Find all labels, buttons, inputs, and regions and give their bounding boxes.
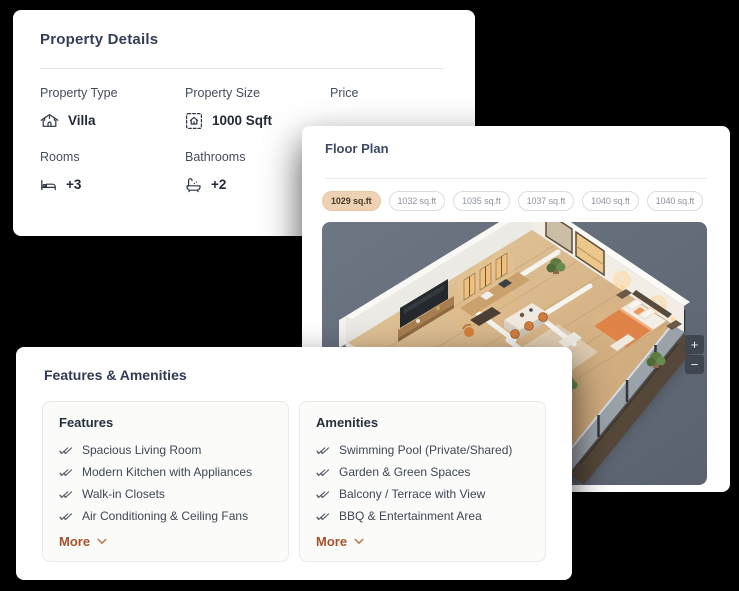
size-tab-1040a[interactable]: 1040 sq.ft [582, 191, 639, 211]
divider [325, 178, 707, 179]
size-tab-1037[interactable]: 1037 sq.ft [518, 191, 575, 211]
rooms-label: Rooms [40, 150, 185, 164]
double-check-icon [316, 445, 330, 456]
double-check-icon [59, 489, 73, 500]
floorplan-size-tabs: 1029 sq.ft 1032 sq.ft 1035 sq.ft 1037 sq… [322, 191, 707, 211]
rooms-value: +3 [40, 174, 185, 194]
size-tab-1032[interactable]: 1032 sq.ft [389, 191, 446, 211]
property-details-title: Property Details [40, 31, 448, 48]
list-item: Walk-in Closets [59, 487, 272, 502]
features-amenities-title: Features & Amenities [44, 367, 572, 383]
size-tab-1040b[interactable]: 1040 sq.ft [647, 191, 704, 211]
list-item: BBQ & Entertainment Area [316, 509, 529, 524]
double-check-icon [316, 489, 330, 500]
property-type-field: Property Type Villa [40, 86, 185, 130]
rooms-field: Rooms +3 [40, 150, 185, 194]
page-background: Property Details Property Type Villa [0, 0, 739, 591]
property-type-value: Villa [40, 110, 185, 130]
double-check-icon [59, 511, 73, 522]
amenities-box: Amenities Swimming Pool (Private/Shared)… [299, 401, 546, 562]
price-label: Price [330, 86, 475, 100]
zoom-controls: + − [685, 335, 704, 374]
amenities-more-button[interactable]: More [316, 534, 364, 551]
zoom-out-button[interactable]: − [685, 355, 704, 374]
double-check-icon [59, 467, 73, 478]
list-item: Spacious Living Room [59, 443, 272, 458]
price-field: Price [330, 86, 475, 130]
double-check-icon [59, 445, 73, 456]
list-item: Balcony / Terrace with View [316, 487, 529, 502]
double-check-icon [316, 467, 330, 478]
list-item: Air Conditioning & Ceiling Fans [59, 509, 272, 524]
features-more-button[interactable]: More [59, 534, 107, 551]
size-tab-1035[interactable]: 1035 sq.ft [453, 191, 510, 211]
list-item: Modern Kitchen with Appliances [59, 465, 272, 480]
property-size-label: Property Size [185, 86, 330, 100]
chevron-down-icon [97, 538, 107, 545]
property-type-label: Property Type [40, 86, 185, 100]
double-check-icon [316, 511, 330, 522]
zoom-in-button[interactable]: + [685, 335, 704, 354]
list-item: Garden & Green Spaces [316, 465, 529, 480]
floor-plan-title: Floor Plan [325, 141, 730, 156]
bed-icon [40, 176, 57, 192]
villa-icon [40, 113, 59, 128]
features-box: Features Spacious Living Room Modern Kit… [42, 401, 289, 562]
amenities-box-title: Amenities [316, 415, 529, 430]
features-amenities-card: Features & Amenities Features Spacious L… [16, 347, 572, 580]
property-size-field: Property Size 1000 Sqft [185, 86, 330, 130]
chevron-down-icon [354, 538, 364, 545]
features-box-title: Features [59, 415, 272, 430]
size-tab-1029[interactable]: 1029 sq.ft [322, 191, 381, 211]
area-measure-icon [185, 111, 203, 129]
list-item: Swimming Pool (Private/Shared) [316, 443, 529, 458]
bathtub-icon [185, 176, 202, 193]
divider [40, 68, 444, 69]
